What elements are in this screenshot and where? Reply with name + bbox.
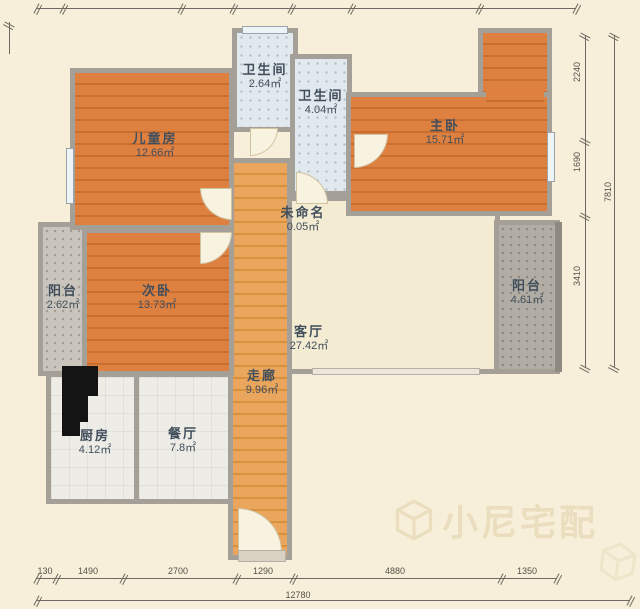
dim-bottom-0: 130 — [37, 566, 52, 576]
room-area: 2.62㎡ — [47, 299, 79, 313]
room-area: 15.71㎡ — [426, 134, 465, 148]
room-name: 卫生间 — [298, 88, 343, 104]
label-bathroom-small: 卫生间 2.64㎡ — [242, 62, 287, 92]
dimension-line-bottom — [36, 578, 557, 579]
dimension-line-left-stub — [9, 22, 10, 54]
dim-right-1: 1690 — [572, 152, 582, 172]
dim-bottom-1: 1490 — [78, 566, 98, 576]
room-area: 12.66㎡ — [132, 147, 177, 161]
label-dining: 餐厅 7.8㎡ — [168, 426, 198, 456]
dim-right-0: 2240 — [572, 62, 582, 82]
room-name: 未命名 — [280, 205, 325, 221]
room-name: 主卧 — [426, 118, 465, 134]
dimension-line-bottom-total — [36, 600, 630, 601]
watermark-cube-icon — [392, 498, 436, 542]
watermark-cube-icon-small — [594, 538, 640, 585]
room-area: 4.04㎡ — [298, 104, 343, 118]
room-area: 13.73㎡ — [138, 299, 177, 313]
dimension-line-top — [36, 8, 576, 9]
window-master-right — [547, 132, 555, 182]
balcony-right-outer-wall — [555, 222, 562, 372]
dimension-line-right-total — [614, 35, 615, 368]
dim-right-2: 3410 — [572, 266, 582, 286]
room-name: 厨房 — [79, 428, 111, 444]
room-master-join — [486, 90, 544, 104]
room-area: 27.42㎡ — [290, 340, 329, 354]
window-living-bottom — [312, 368, 480, 375]
room-area: 4.61㎡ — [511, 294, 543, 308]
watermark: 小尼宅配 — [392, 494, 598, 546]
label-children: 儿童房 12.66㎡ — [132, 131, 177, 161]
dim-right-total: 7810 — [603, 178, 613, 206]
room-name: 走廊 — [246, 368, 278, 384]
kitchen-counter — [62, 366, 98, 396]
label-unnamed: 未命名 0.05㎡ — [280, 205, 325, 235]
room-name: 儿童房 — [132, 131, 177, 147]
label-corridor: 走廊 9.96㎡ — [246, 368, 278, 398]
window-children-left — [66, 148, 74, 204]
label-kitchen: 厨房 4.12㎡ — [79, 428, 111, 458]
room-area: 4.12㎡ — [79, 444, 111, 458]
dim-bottom-4: 4880 — [385, 566, 405, 576]
room-name: 次卧 — [138, 283, 177, 299]
door-arc-bath-small — [250, 128, 278, 156]
dim-bottom-5: 1350 — [517, 566, 537, 576]
room-name: 客厅 — [290, 324, 329, 340]
label-bathroom-large: 卫生间 4.04㎡ — [298, 88, 343, 118]
room-area: 9.96㎡ — [246, 384, 278, 398]
room-name: 阳台 — [47, 283, 79, 299]
label-living: 客厅 27.42㎡ — [290, 324, 329, 354]
dim-bottom-3: 1290 — [253, 566, 273, 576]
window-bathroom-top — [242, 26, 288, 34]
room-name: 卫生间 — [242, 62, 287, 78]
dim-bottom-2: 2700 — [168, 566, 188, 576]
kitchen-counter — [62, 422, 80, 436]
watermark-text: 小尼宅配 — [442, 494, 598, 546]
floor-plan: 儿童房 12.66㎡ 卫生间 2.64㎡ 卫生间 4.04㎡ 主卧 15.71㎡… — [0, 0, 640, 609]
room-area: 2.64㎡ — [242, 78, 287, 92]
dim-bottom-total: 12780 — [281, 590, 314, 600]
room-name: 阳台 — [511, 278, 543, 294]
label-second-bedroom: 次卧 13.73㎡ — [138, 283, 177, 313]
label-master: 主卧 15.71㎡ — [426, 118, 465, 148]
dimension-line-right — [585, 35, 586, 368]
room-area: 0.05㎡ — [280, 221, 325, 235]
kitchen-counter — [62, 396, 88, 422]
entrance-step — [238, 550, 286, 562]
room-name: 餐厅 — [168, 426, 198, 442]
room-area: 7.8㎡ — [168, 442, 198, 456]
label-balcony-left: 阳台 2.62㎡ — [47, 283, 79, 313]
label-balcony-right: 阳台 4.61㎡ — [511, 278, 543, 308]
